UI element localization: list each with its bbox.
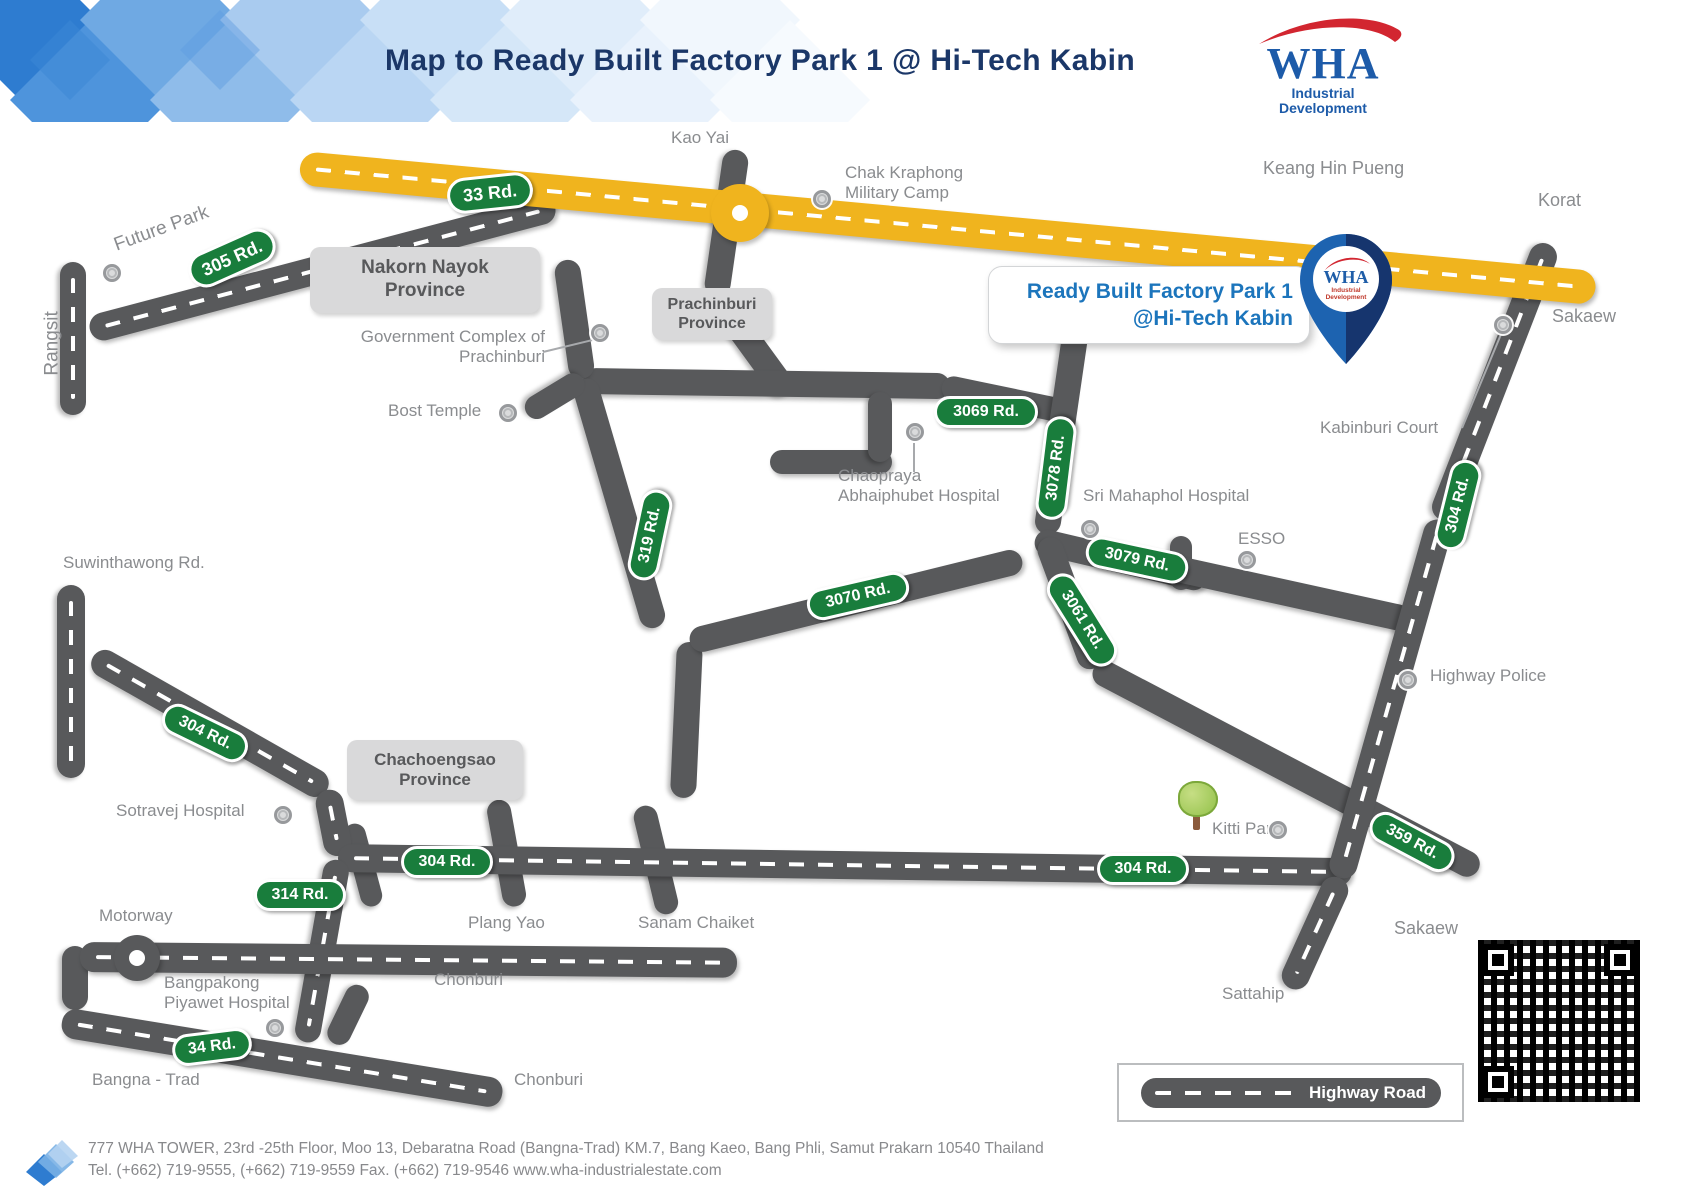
wha-logo-tagline2: Development: [1243, 101, 1403, 116]
svg-text:WHA: WHA: [1324, 267, 1369, 287]
map-canvas: Map to Ready Built Factory Park 1 @ Hi-T…: [0, 0, 1683, 1190]
kabinburi-court-marker: [1494, 316, 1512, 334]
road-suwinthawong: [57, 585, 85, 778]
road-sattahip-leg: [1277, 872, 1352, 994]
destination-pin-icon: WHA Industrial Development: [1296, 230, 1396, 375]
page-title: Map to Ready Built Factory Park 1 @ Hi-T…: [290, 44, 1230, 78]
chak-kraphong-marker: [813, 190, 831, 208]
government-complex-marker: [591, 324, 609, 342]
label-sakaew-bottom: Sakaew: [1394, 918, 1458, 940]
label-sotravej: Sotravej Hospital: [116, 801, 245, 821]
highway-police-marker: [1399, 671, 1417, 689]
label-government-complex: Government Complex of Prachinburi: [355, 327, 545, 368]
sri-mahaphol-marker: [1081, 520, 1099, 538]
road-sanam-upper: [670, 641, 703, 798]
badge-3069: 3069 Rd.: [934, 396, 1038, 428]
footer-line1: 777 WHA TOWER, 23rd -25th Floor, Moo 13,…: [88, 1138, 1044, 1160]
label-chonburi-lower: Chonburi: [514, 1070, 583, 1090]
badge-314: 314 Rd.: [254, 879, 346, 911]
label-sanam-chaiket: Sanam Chaiket: [638, 913, 754, 933]
qr-finder-icon: [1482, 1066, 1514, 1098]
badge-304-mid: 304 Rd.: [401, 846, 493, 878]
qr-finder-icon: [1482, 944, 1514, 976]
badge-3070: 3070 Rd.: [804, 569, 913, 624]
road-h1: [583, 368, 950, 399]
label-plang-yao: Plang Yao: [468, 913, 545, 933]
label-rangsit: Rangsit: [42, 298, 65, 388]
footer-logo-icon: [24, 1138, 80, 1190]
legend-highway-pill: Highway Road: [1141, 1078, 1441, 1108]
wha-logo-brand: WHA: [1243, 38, 1403, 89]
destination-callout: Ready Built Factory Park 1 @Hi-Tech Kabi…: [988, 266, 1310, 344]
province-box-chachoengsao: Chachoengsao Province: [347, 740, 523, 800]
future-park-marker: [103, 264, 121, 282]
qr-code: [1478, 940, 1640, 1102]
label-sattahip: Sattahip: [1222, 984, 1284, 1004]
label-bangna-trad: Bangna - Trad: [92, 1070, 200, 1090]
label-esso: ESSO: [1238, 529, 1285, 549]
label-keang-hin-pueng: Keang Hin Pueng: [1263, 158, 1404, 180]
destination-callout-line2: @Hi-Tech Kabin: [989, 305, 1293, 332]
badge-359: 359 Rd.: [1364, 806, 1460, 877]
qr-finder-icon: [1604, 944, 1636, 976]
road-319-upper: [553, 258, 596, 380]
kitti-park-tree-icon: [1178, 781, 1218, 817]
label-sri-mahaphol: Sri Mahaphol Hospital: [1083, 486, 1249, 506]
svg-text:Development: Development: [1326, 294, 1368, 301]
footer-line2: Tel. (+662) 719-9555, (+662) 719-9559 Fa…: [88, 1160, 1044, 1182]
header: Map to Ready Built Factory Park 1 @ Hi-T…: [0, 0, 1683, 122]
label-kao-yai: Kao Yai: [671, 128, 729, 148]
province-box-prachinburi: Prachinburi Province: [652, 288, 772, 340]
label-korat: Korat: [1538, 190, 1581, 212]
label-chak-kraphong: Chak Kraphong Military Camp: [845, 163, 963, 204]
footer-address: 777 WHA TOWER, 23rd -25th Floor, Moo 13,…: [88, 1138, 1044, 1182]
legend: Highway Road: [1117, 1063, 1464, 1122]
kitti-park-marker: [1269, 821, 1287, 839]
legend-dash-icon: [1155, 1091, 1295, 1095]
roundabout-33-center: [732, 205, 748, 221]
badge-304-right: 304 Rd.: [1097, 853, 1189, 885]
chaopraya-marker: [906, 423, 924, 441]
destination-callout-line1: Ready Built Factory Park 1: [989, 278, 1293, 305]
wha-logo: WHA Industrial Development: [1243, 10, 1403, 114]
sotravej-marker: [274, 806, 292, 824]
label-motorway: Motorway: [99, 906, 173, 926]
road-hospital-block-v: [868, 392, 892, 462]
legend-label: Highway Road: [1309, 1083, 1427, 1103]
label-chaopraya: Chaopraya Abhaiphubet Hospital: [838, 466, 1000, 507]
road-esso-diagonal: [1152, 551, 1412, 632]
label-highway-police: Highway Police: [1430, 666, 1546, 686]
bost-temple-marker: [499, 404, 517, 422]
label-suwinthawong: Suwinthawong Rd.: [63, 553, 205, 573]
label-bost-temple: Bost Temple: [388, 401, 481, 421]
label-sakaew-top: Sakaew: [1552, 306, 1616, 328]
label-chonburi-upper: Chonburi: [434, 970, 503, 990]
bangpakong-marker: [266, 1019, 284, 1037]
svg-text:Industrial: Industrial: [1331, 287, 1360, 294]
badge-3078: 3078 Rd.: [1034, 414, 1078, 521]
label-future-park: Future Park: [111, 202, 212, 257]
roundabout-motorway-center: [129, 950, 145, 966]
label-kabinburi-court: Kabinburi Court: [1320, 418, 1438, 438]
esso-marker: [1238, 551, 1256, 569]
label-bangpakong: Bangpakong Piyawet Hospital: [164, 973, 290, 1014]
road-314-connector: [323, 981, 372, 1049]
province-box-nakorn-nayok: Nakorn Nayok Province: [310, 247, 540, 313]
